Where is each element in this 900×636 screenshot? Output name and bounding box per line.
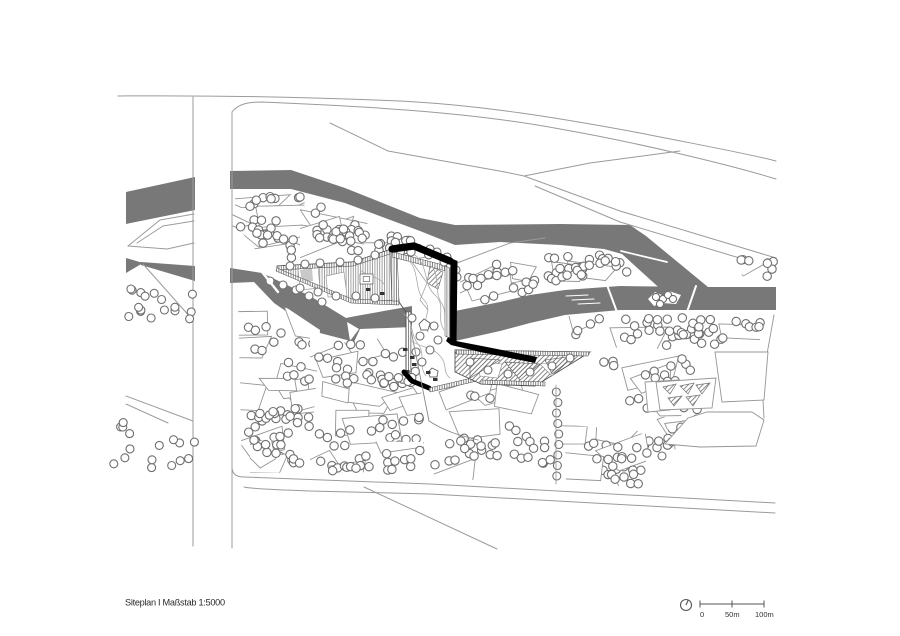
svg-text:Siteplan I Maßstab 1:5000: Siteplan I Maßstab 1:5000 <box>125 598 225 608</box>
svg-text:0: 0 <box>700 610 704 619</box>
svg-text:50m: 50m <box>725 610 740 619</box>
svg-text:100m: 100m <box>755 610 774 619</box>
